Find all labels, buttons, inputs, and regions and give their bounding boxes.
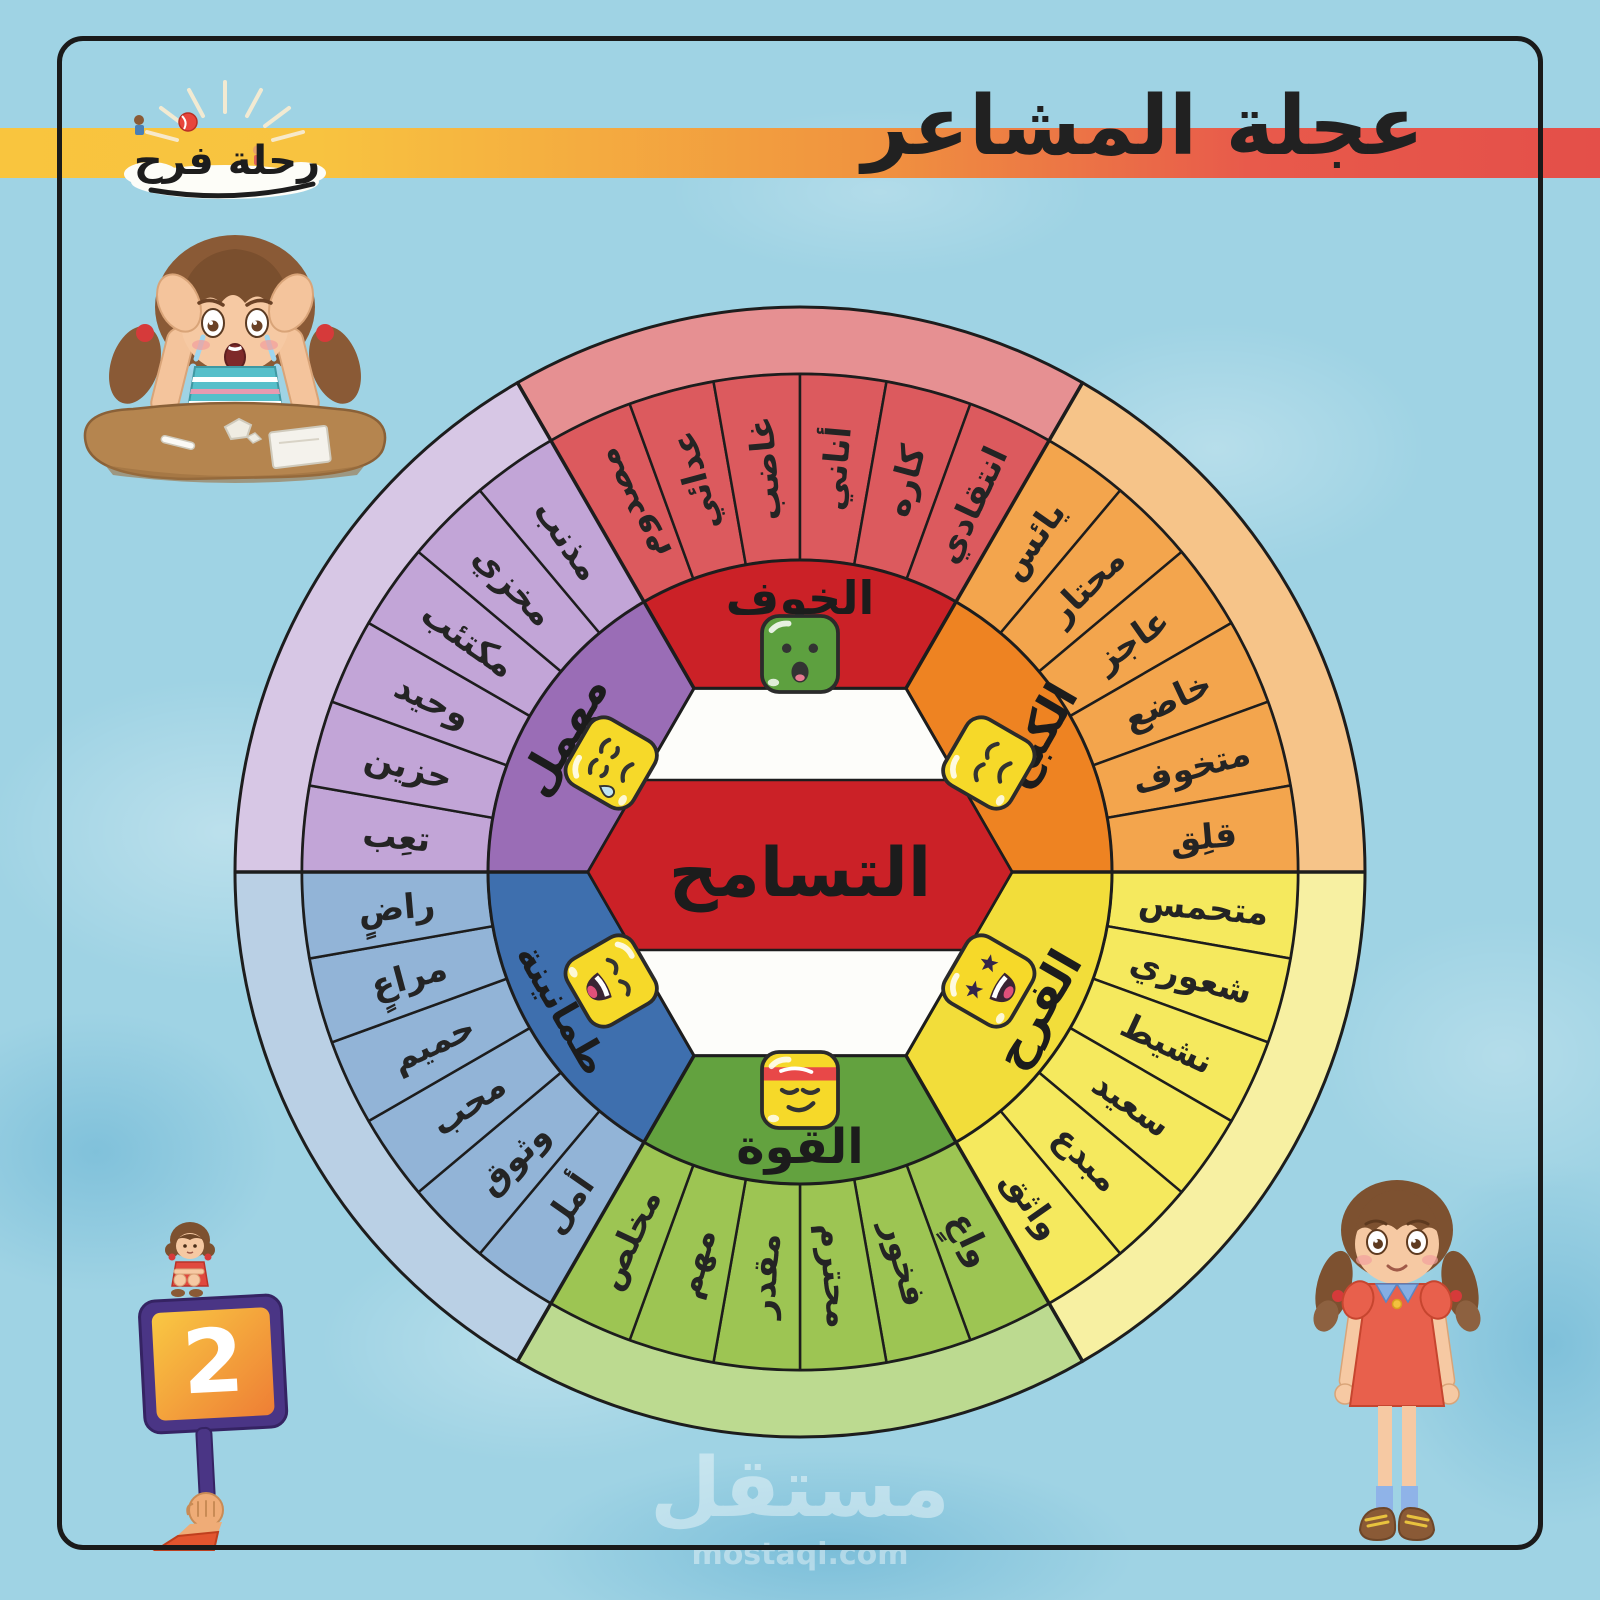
- word-neglected-0: تعِب: [361, 815, 432, 861]
- wheel-canvas: التسامحمصدومعدائيغاضبأنانيكارهانتقاديالخ…: [0, 0, 1600, 1600]
- scared-face-icon: [762, 616, 838, 692]
- crying-girl-illustration: [85, 235, 385, 483]
- center-label: التسامح: [669, 834, 931, 913]
- word-restraint-5: قلِق: [1169, 815, 1239, 861]
- poster: رحلة فرح عجلة المشاعر التسامحمصدومعدائيغ…: [0, 0, 1600, 1600]
- number-sign: 2: [139, 1294, 288, 1433]
- watermark-text: مستقل: [650, 1441, 950, 1536]
- sign-number: 2: [180, 1308, 247, 1414]
- number-sign-illustration: 2: [139, 1222, 288, 1550]
- standing-girl-illustration: [1309, 1180, 1485, 1540]
- word-strength-3: مقدر: [742, 1232, 789, 1322]
- determined-face-icon: [762, 1052, 838, 1128]
- watermark-domain: mostaql.com: [691, 1537, 908, 1572]
- emotions-wheel: التسامحمصدومعدائيغاضبأنانيكارهانتقاديالخ…: [235, 307, 1365, 1437]
